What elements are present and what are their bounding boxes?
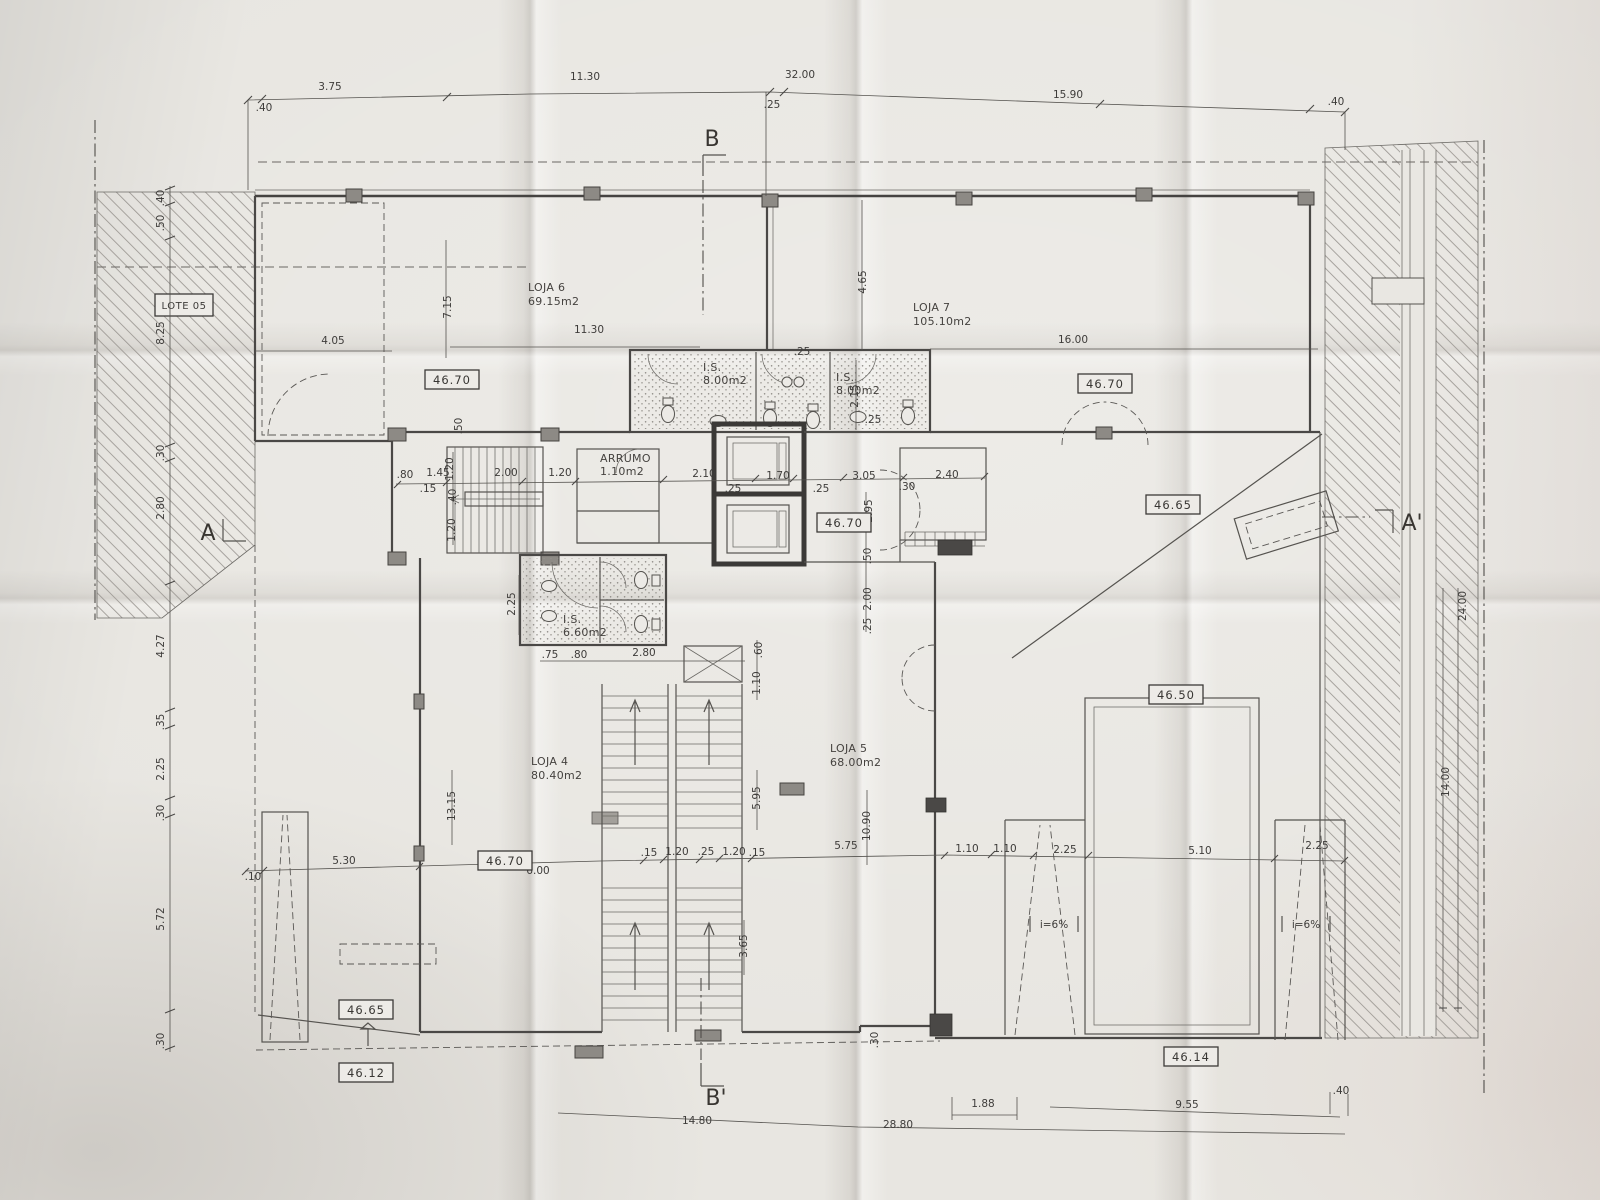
lot-label: LOTE 05 [162, 301, 207, 312]
stair-upper [447, 447, 543, 553]
dim-label: 2.25 [1053, 844, 1076, 856]
dim-label: 4.27 [155, 634, 167, 657]
lower-structure-inner [1094, 707, 1250, 1025]
room-area: 68.00m2 [830, 756, 881, 769]
dim-label: 14.80 [682, 1115, 712, 1127]
dim-label: 2.25 [506, 592, 518, 615]
wall-lower-right [935, 562, 1322, 1038]
dim-label: 1.70 [766, 470, 789, 482]
elevation-value: 46.14 [1172, 1050, 1210, 1064]
vent-shaft [684, 646, 742, 682]
dim-label: 10.90 [861, 811, 873, 841]
door-swing-porch [268, 374, 330, 436]
dim-label: 11.30 [574, 324, 604, 336]
hatched-area-lot [97, 192, 255, 618]
dim-label: 1.20 [665, 846, 688, 858]
dim-label: 1.10 [751, 671, 763, 694]
planter-rotated [1234, 491, 1338, 559]
dim-label: 8.25 [155, 321, 167, 344]
dim-label: .30 [155, 805, 167, 822]
section-letter: B' [705, 1086, 726, 1111]
room-name: I.S. [703, 361, 721, 374]
elevation-badge: 46.70 [1078, 374, 1132, 393]
elevation-value: 46.50 [1157, 688, 1195, 702]
lot-label-box: LOTE 05 [155, 294, 213, 316]
section-bracket [701, 1063, 724, 1086]
room-name: LOJA 5 [830, 742, 867, 755]
dim-label: 1.10 [993, 843, 1016, 855]
dim-label: 3.05 [852, 470, 875, 482]
dim-label: .25 [725, 483, 742, 495]
stair-double-flight [602, 684, 742, 1032]
sidewalk-feature [1372, 278, 1424, 304]
room-name: LOJA 7 [913, 301, 950, 314]
dim-label: .25 [794, 346, 811, 358]
site-boundaries: LOTE 05 [95, 120, 1484, 1095]
dim-label: 2.80 [632, 647, 655, 659]
elevation-badge: 46.65 [1146, 495, 1200, 514]
elevation-badge: 46.70 [817, 513, 871, 532]
elevation-value: 46.70 [825, 516, 863, 530]
dim-label: 2.10 [692, 468, 715, 480]
dim-label: 1.10 [955, 843, 978, 855]
room-right-of-core [804, 432, 986, 562]
building-walls [97, 162, 1478, 1058]
dim-label: 5.95 [751, 786, 763, 809]
elevation-value: 46.65 [1154, 498, 1192, 512]
dim-label: 1.88 [971, 1098, 994, 1110]
elevation-value: 46.12 [347, 1066, 385, 1080]
dim-label: 28.80 [883, 1119, 913, 1131]
section-letter: B [704, 127, 719, 152]
dim-label: 4.65 [857, 270, 869, 293]
dim-label: .30 [155, 445, 167, 462]
terrace-diagonal [1012, 434, 1322, 658]
dim-label: 7.15 [442, 295, 454, 318]
dim-label: 2.25 [155, 757, 167, 780]
elevation-value: 46.70 [433, 373, 471, 387]
elevation-badge: 46.70 [425, 370, 479, 389]
floor-plan-drawing: LOTE 05 [0, 0, 1600, 1200]
lower-structure-outer [1085, 698, 1259, 1034]
porch-dashed-outline [262, 203, 384, 435]
room-name: I.S. [836, 371, 854, 384]
elevation-badge: 46.70 [478, 851, 532, 870]
dim-label: 1.20 [446, 518, 458, 541]
dim-label: 1.20 [722, 846, 745, 858]
dim-label: .15 [641, 847, 658, 859]
columns [346, 187, 1314, 1058]
elevation-badge: 46.14 [1164, 1047, 1218, 1066]
dim-label: .40 [1333, 1085, 1350, 1097]
dim-label: 24.00 [1457, 591, 1469, 621]
dim-label: 2.25 [1305, 840, 1328, 852]
dimension-lines [165, 88, 1462, 1134]
dim-label: .40 [256, 102, 273, 114]
dim-label: 11.30 [570, 71, 600, 83]
dim-label: .15 [749, 847, 766, 859]
room-area: 105.10m2 [913, 315, 972, 328]
dim-label: .10 [245, 871, 262, 883]
elevation-badge: 46.50 [1149, 685, 1203, 704]
room-area: 8.00m2 [703, 374, 747, 387]
ramp-labels: i=6% i=6% [1030, 916, 1330, 932]
room-name: LOJA 6 [528, 281, 565, 294]
dim-label: .25 [698, 846, 715, 858]
dim-label: .40 [1328, 96, 1345, 108]
dim-label: 14.00 [1440, 767, 1452, 797]
dim-label: .80 [571, 649, 588, 661]
dim-label: 9.55 [1175, 1099, 1198, 1111]
dim-label: .40 [447, 489, 459, 506]
elevation-value: 46.65 [347, 1003, 385, 1017]
dimension-labels: .40 3.75 11.30 32.00 .25 15.90 .40 .40 .… [155, 69, 1469, 1131]
room-area: 69.15m2 [528, 295, 579, 308]
dim-label: 1.20 [548, 467, 571, 479]
dim-label: .30 [899, 481, 916, 493]
dim-label: .35 [155, 714, 167, 731]
elevation-badge: 46.65 [339, 1000, 393, 1019]
sanitary-block-top [630, 350, 930, 432]
dim-label: .50 [862, 548, 874, 565]
room-area: 1.10m2 [600, 465, 644, 478]
dim-label: .30 [155, 1033, 167, 1050]
dim-label: 3.65 [738, 934, 750, 957]
is-floor-texture [633, 353, 753, 429]
dim-label: 3.75 [318, 81, 341, 93]
dim-label: .50 [453, 418, 465, 435]
ramp-slope-label: i=6% [1040, 919, 1068, 931]
dim-label: 32.00 [785, 69, 815, 81]
room-name: LOJA 4 [531, 755, 568, 768]
dim-label: .25 [862, 618, 874, 635]
dim-label: 2.80 [155, 496, 167, 519]
elevation-badge: 46.12 [339, 1063, 393, 1082]
dim-label: .40 [155, 190, 167, 207]
dim-label: 5.10 [1188, 845, 1211, 857]
ramp-slope-label: i=6% [1292, 919, 1320, 931]
dim-label: 5.30 [332, 855, 355, 867]
dim-label: .50 [155, 215, 167, 232]
dim-label: .25 [865, 414, 882, 426]
room-name: ARRUMO [600, 452, 651, 465]
room-area: 80.40m2 [531, 769, 582, 782]
dim-label: .80 [397, 469, 414, 481]
dim-label: 5.75 [834, 840, 857, 852]
wall-top-left-block [255, 196, 392, 441]
section-bracket [703, 155, 726, 176]
dim-label: 1.20 [444, 457, 456, 480]
dim-label: 2.00 [862, 587, 874, 610]
room-area: 8.00m2 [836, 384, 880, 397]
dim-label: 16.00 [1058, 334, 1088, 346]
dim-label: .75 [542, 649, 559, 661]
dim-label: .30 [869, 1032, 881, 1049]
dim-label: 15.90 [1053, 89, 1083, 101]
dim-label: 2.40 [935, 469, 958, 481]
dim-label: .25 [813, 483, 830, 495]
dim-label: .60 [753, 642, 765, 659]
dim-label: 5.72 [155, 907, 167, 930]
section-letter: A [200, 521, 215, 546]
dim-label: 4.05 [321, 335, 344, 347]
wall-lower-left [420, 558, 935, 1032]
dim-label: .15 [420, 483, 437, 495]
room-name: I.S. [563, 613, 581, 626]
terrace-structures [902, 402, 1345, 1040]
elevation-value: 46.70 [486, 854, 524, 868]
dim-label: 2.00 [494, 467, 517, 479]
dim-label: .25 [764, 99, 781, 111]
elevation-value: 46.70 [1086, 377, 1124, 391]
room-area: 6.60m2 [563, 626, 607, 639]
double-door-dashed-loja5 [902, 645, 935, 711]
section-letter: A' [1401, 511, 1422, 536]
dim-label: 13.15 [446, 791, 458, 821]
